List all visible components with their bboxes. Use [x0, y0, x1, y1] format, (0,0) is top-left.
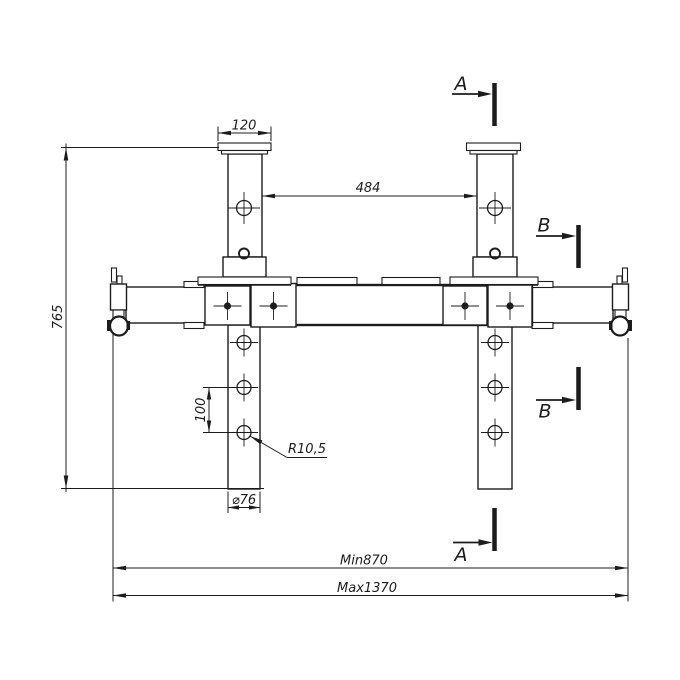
right-support-tower [467, 143, 521, 277]
dim-min-length-label: Min870 [340, 554, 388, 569]
dim-max-length-label: Max1370 [337, 581, 397, 596]
dim-tower-spacing-label: 484 [356, 181, 381, 196]
telescopic-beam [126, 277, 613, 329]
section-b-bottom-label: B [538, 401, 551, 423]
dim-hole-pitch-label: 100 [194, 398, 209, 423]
dimension-lines [61, 127, 628, 602]
dim-tube-width-label: ⌀76 [232, 493, 256, 508]
dim-hole-radius-label: R10,5 [288, 442, 326, 457]
dim-overall-height-label: 765 [51, 305, 66, 330]
left-support-tower [218, 143, 271, 277]
technical-drawing: 120 484 765 100 R10,5 ⌀76 Min870 Max1370… [0, 0, 680, 680]
right-end-bracket [609, 268, 632, 336]
section-a-bottom-label: A [453, 544, 468, 566]
lower-column-holes [230, 329, 509, 447]
section-a-top-label: A [453, 73, 468, 95]
left-end-bracket [107, 268, 130, 336]
dim-cap-width-label: 120 [232, 119, 257, 134]
section-b-top-label: B [537, 215, 550, 237]
